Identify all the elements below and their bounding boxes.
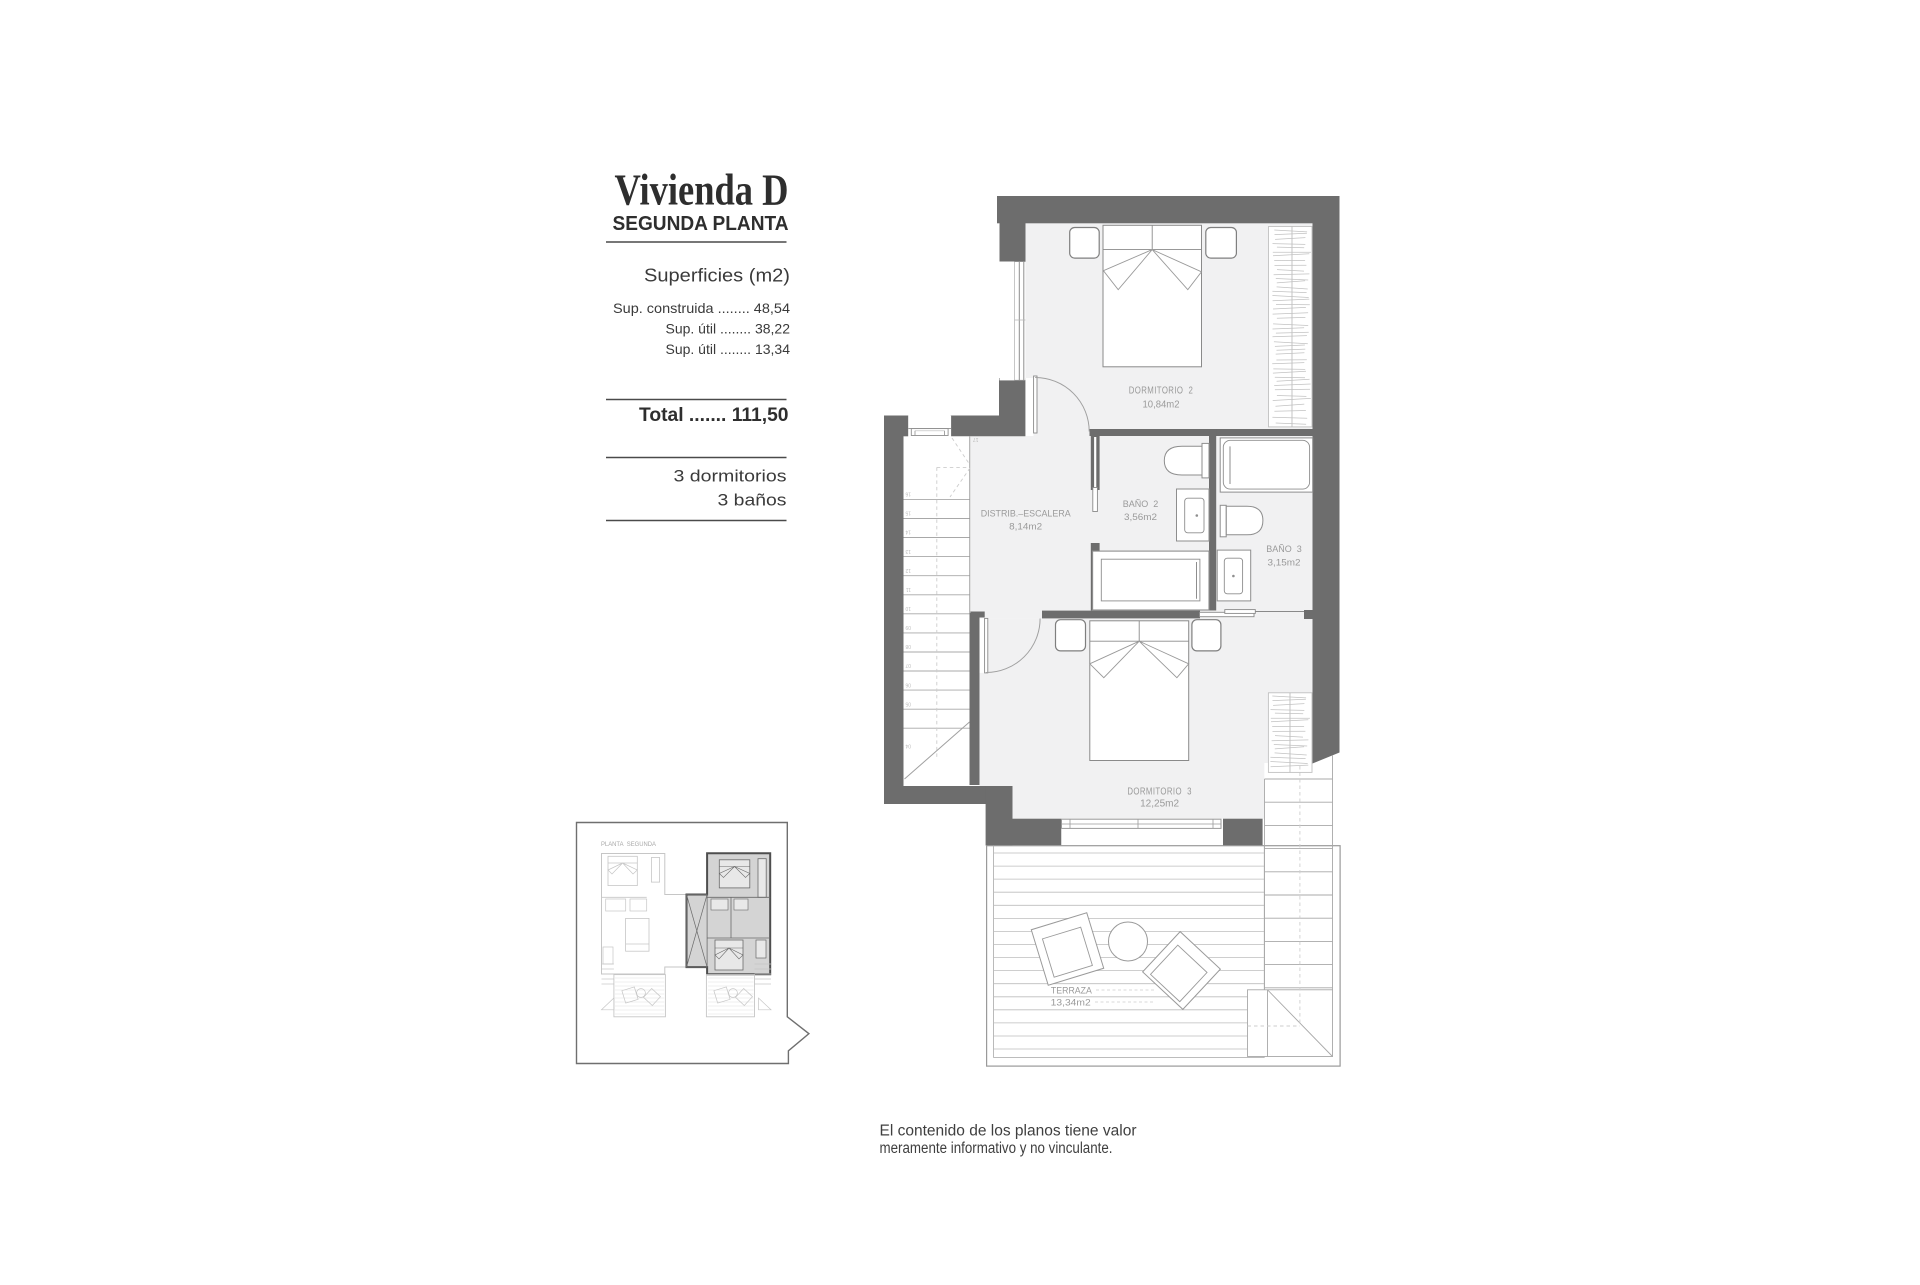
svg-text:12: 12 [905, 567, 911, 573]
svg-text:05: 05 [905, 700, 911, 706]
svg-text:3 baños: 3 baños [718, 491, 787, 510]
svg-text:BAÑO 2: BAÑO 2 [1123, 499, 1159, 510]
svg-text:Sup. útil ........ 13,34: Sup. útil ........ 13,34 [666, 341, 791, 357]
svg-text:13: 13 [905, 548, 911, 554]
svg-text:meramente informativo y no vin: meramente informativo y no vinculante. [880, 1140, 1113, 1157]
svg-text:09: 09 [905, 624, 911, 630]
svg-text:12,25m2: 12,25m2 [1140, 799, 1179, 810]
svg-text:Total ....... 111,50: Total ....... 111,50 [639, 405, 789, 426]
svg-text:06: 06 [905, 681, 911, 687]
svg-text:El contenido de los planos tie: El contenido de los planos tiene valor [880, 1122, 1137, 1139]
svg-text:17: 17 [973, 436, 979, 442]
svg-text:11: 11 [906, 586, 911, 592]
svg-text:SEGUNDA PLANTA: SEGUNDA PLANTA [613, 212, 789, 235]
svg-text:16: 16 [905, 491, 911, 497]
svg-text:Sup. construida ........ 48,54: Sup. construida ........ 48,54 [613, 300, 790, 316]
svg-text:Superficies (m2): Superficies (m2) [644, 265, 790, 286]
svg-text:3,56m2: 3,56m2 [1124, 512, 1157, 523]
svg-text:DORMITORIO 2: DORMITORIO 2 [1129, 386, 1194, 397]
svg-text:PLANTA SEGUNDA: PLANTA SEGUNDA [601, 841, 657, 848]
svg-text:TERRAZA: TERRAZA [1051, 986, 1093, 997]
svg-text:BAÑO 3: BAÑO 3 [1266, 544, 1302, 555]
svg-text:DORMITORIO 3: DORMITORIO 3 [1127, 787, 1192, 798]
svg-text:15: 15 [905, 510, 911, 516]
svg-text:04: 04 [905, 742, 911, 748]
svg-text:08: 08 [905, 643, 911, 649]
svg-text:07: 07 [905, 662, 911, 668]
svg-text:Sup. útil ........ 38,22: Sup. útil ........ 38,22 [666, 321, 791, 337]
svg-text:DISTRIB.–ESCALERA: DISTRIB.–ESCALERA [981, 509, 1072, 520]
svg-text:10: 10 [905, 605, 911, 611]
svg-text:8,14m2: 8,14m2 [1009, 522, 1042, 533]
svg-text:13,34m2: 13,34m2 [1051, 998, 1091, 1009]
svg-text:Vivienda D: Vivienda D [615, 166, 789, 215]
svg-text:10,84m2: 10,84m2 [1143, 400, 1180, 411]
svg-text:14: 14 [905, 529, 911, 535]
svg-text:3,15m2: 3,15m2 [1268, 558, 1301, 569]
svg-text:3 dormitorios: 3 dormitorios [674, 467, 787, 486]
